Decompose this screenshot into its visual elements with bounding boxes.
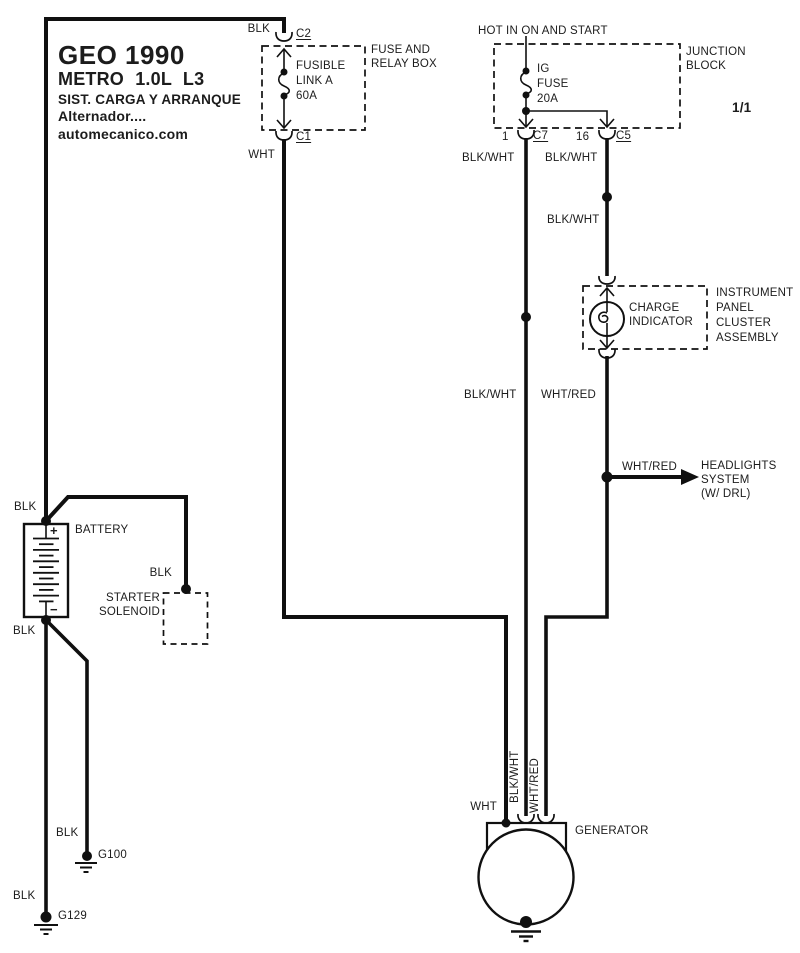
starter-solenoid-label-line2: SOLENOID (60, 606, 160, 619)
junction-block-title-line1: JUNCTION (686, 46, 746, 59)
cluster-title-line3: CLUSTER (716, 317, 771, 330)
battery-negative-sign: − (50, 603, 58, 616)
connector-label-c1: C1 (296, 131, 311, 144)
connector-label-c7: C7 (533, 130, 548, 143)
wire-label-blk-battery-top: BLK (14, 501, 36, 514)
ground-label-g100: G100 (98, 849, 127, 862)
wire-label-blkwht-c7: BLK/WHT (462, 152, 515, 165)
wire-label-whtred-mid: WHT/RED (541, 389, 596, 402)
charge-indicator-lamp-symbol (590, 288, 624, 348)
cluster-title-line1: INSTRUMENT (716, 287, 793, 300)
fusible-link-label-line1: FUSIBLE (296, 60, 345, 73)
page-indicator: 1/1 (732, 101, 751, 114)
wire-label-blkwht-mid: BLK/WHT (464, 389, 517, 402)
fusible-link-label-line2: LINK A (296, 75, 333, 88)
cluster-title-line4: ASSEMBLY (716, 332, 779, 345)
charge-indicator-label-line2: INDICATOR (629, 316, 693, 329)
splice-dot-blkwht (602, 192, 612, 202)
hot-in-on-start-label: HOT IN ON AND START (478, 25, 608, 38)
junction-block-outline (494, 44, 680, 128)
headlights-label-line3: (W/ DRL) (701, 488, 751, 501)
battery-label: BATTERY (75, 524, 128, 537)
fuse-relay-box-title-line2: RELAY BOX (371, 58, 437, 71)
ig-fuse-label-line3: 20A (537, 93, 558, 106)
title-brand: GEO 1990 (58, 42, 185, 68)
charge-indicator-label-line1: CHARGE (629, 302, 679, 315)
wire-label-whtred-generator: WHT/RED (529, 758, 542, 813)
wire-label-blkwht-c5: BLK/WHT (545, 152, 598, 165)
wire-label-blk-top: BLK (227, 23, 270, 36)
junction-block-title-line2: BLOCK (686, 60, 726, 73)
connector-c5-symbol (599, 130, 615, 139)
wire-label-blk-solenoid: BLK (130, 567, 172, 580)
ground-label-g129: G129 (58, 910, 87, 923)
wiring-diagram-page: GEO 1990 METRO 1.0L L3 SIST. CARGA Y ARR… (0, 0, 800, 953)
pin-label-16: 16 (576, 131, 589, 144)
cluster-title-line2: PANEL (716, 302, 754, 315)
battery-positive-sign: + (50, 524, 58, 537)
ig-fuse-label-line2: FUSE (537, 78, 568, 91)
headlights-label-line1: HEADLIGHTS (701, 460, 777, 473)
generator-symbol (479, 814, 574, 941)
connector-label-c5: C5 (616, 130, 631, 143)
wire-label-wht-generator: WHT (455, 801, 497, 814)
wire-label-blkwht-upper: BLK/WHT (547, 214, 600, 227)
fuse-relay-box-outline (262, 46, 365, 130)
connector-c2-symbol (276, 32, 292, 41)
ground-g100-symbol (75, 851, 97, 872)
connector-c1-symbol (276, 131, 292, 140)
headlights-label-line2: SYSTEM (701, 474, 750, 487)
fuse-relay-box-title-line1: FUSE AND (371, 44, 430, 57)
wire-wht-fusebox-to-generator (284, 139, 506, 823)
wire-label-blkwht-generator: BLK/WHT (509, 750, 522, 803)
connector-c7-symbol (518, 130, 534, 139)
title-website: automecanico.com (58, 127, 188, 142)
ig-fuse-label-line1: IG (537, 63, 550, 76)
wire-label-blk-g100: BLK (56, 827, 78, 840)
title-system: SIST. CARGA Y ARRANQUE (58, 92, 241, 107)
wire-label-blk-g129: BLK (13, 890, 35, 903)
generator-label: GENERATOR (575, 825, 649, 838)
ground-g129-symbol (34, 912, 58, 935)
wire-whtred-cluster-to-generator (546, 356, 607, 816)
title-subsystem: Alternador.... (58, 109, 146, 124)
fusible-link-label-line3: 60A (296, 90, 317, 103)
fusible-link-symbol (277, 49, 291, 128)
splice-dot-headlights (602, 472, 613, 483)
starter-solenoid-outline (164, 584, 208, 644)
connector-cluster-top-symbol (599, 276, 615, 284)
wire-blk-battery-to-g100 (46, 620, 87, 852)
splice-dot-c7-wire (521, 312, 531, 322)
pin-label-1: 1 (502, 131, 509, 144)
title-model: METRO 1.0L L3 (58, 70, 204, 89)
wire-label-whtred-headlights: WHT/RED (622, 461, 677, 474)
wire-label-wht-top: WHT (232, 149, 275, 162)
connector-label-c2: C2 (296, 28, 311, 41)
starter-solenoid-label-line1: STARTER (60, 592, 160, 605)
wiring-diagram-graphics (0, 0, 800, 953)
wire-label-blk-battery-bottom: BLK (13, 625, 35, 638)
